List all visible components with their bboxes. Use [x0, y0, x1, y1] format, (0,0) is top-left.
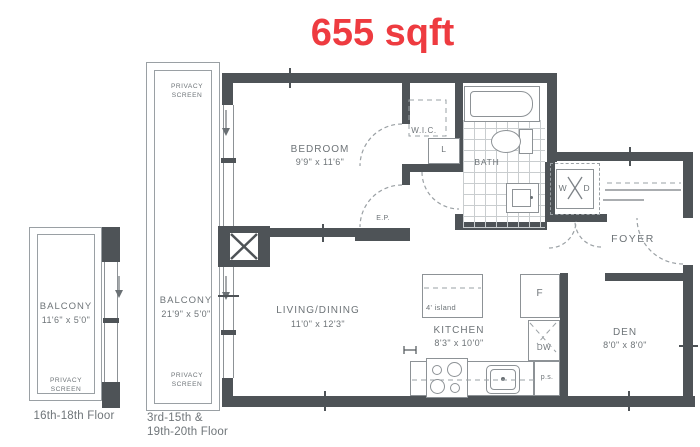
den-label: DEN [597, 327, 653, 340]
wall-bath-right-exterior [547, 73, 557, 162]
sqft-title: 655 sqft [250, 12, 515, 58]
wall-wic-bottom [402, 164, 462, 172]
fridge-label: F [520, 288, 560, 301]
wall-right-below-entry [683, 265, 693, 407]
electrical-panel-label: E.P. [370, 215, 396, 224]
wd-door-left-arc [549, 221, 576, 248]
burner-small-2 [450, 383, 460, 393]
balcony-left-dims: 11'6" x 5'0" [28, 315, 104, 326]
balcony-main-inner [154, 70, 212, 404]
bath-sink-faucet [530, 196, 533, 199]
den-dims: 8'0" x 8'0" [589, 340, 661, 351]
wall-left-bottom [222, 378, 233, 407]
living-dining-dims: 11'0" x 12'3" [278, 319, 358, 330]
wall-kitchen-den-divider [560, 273, 568, 396]
wall-balcony-left-top [102, 227, 120, 262]
kitchen-sink-drain [501, 377, 505, 381]
wall-bedroom-right-upper [402, 83, 410, 124]
burner-large-2 [430, 379, 445, 394]
wall-right-above-entry [683, 152, 693, 218]
wic-door-arc [360, 124, 402, 166]
wall-top [222, 73, 557, 83]
wall-den-top [605, 273, 683, 281]
floor-range-right-line1: 3rd-15th & [147, 411, 247, 425]
dryer-label: D [581, 183, 593, 194]
bedroom-label: BEDROOM [282, 144, 358, 157]
balcony-main-privacy-top-label: PRIVACY SCREEN [162, 83, 212, 101]
floor-range-left: 16th-18th Floor [14, 409, 134, 423]
washer-label: W [557, 183, 569, 194]
floorplan: 655 sqft BALCONY 11'6" x 5'0" PRIVACY SC… [0, 0, 700, 447]
dishwasher [528, 320, 560, 361]
wall-balcony-left-mullion [103, 318, 119, 323]
kitchen-label: KITCHEN [426, 325, 492, 338]
glass-wall-mullion-1 [221, 158, 236, 163]
balcony-left-inner [37, 234, 95, 394]
balcony-left-privacy-screen-label: PRIVACY SCREEN [40, 377, 92, 395]
bath-sink-basin [512, 189, 531, 207]
wall-left-top [222, 73, 233, 105]
foyer-label: FOYER [597, 233, 669, 246]
balcony-main-label: BALCONY [156, 295, 216, 307]
kitchen-dims: 8'3" x 10'0" [421, 338, 497, 349]
wic-label: W.I.C. [399, 126, 449, 136]
burner-large-1 [447, 362, 462, 377]
pipe-shaft-label: p.s. [534, 374, 560, 383]
wall-balcony-left-bottom [102, 382, 120, 408]
floor-range-right-line2: 19th-20th Floor [147, 425, 257, 439]
bedroom-dims: 9'9" x 11'6" [279, 157, 361, 168]
bath-door-arc [422, 172, 459, 209]
island-label: 4' island [426, 303, 478, 312]
wall-wd-bottom [545, 214, 607, 222]
column-shaft-box [228, 231, 260, 262]
wall-bedroom-bottom-thick [355, 228, 410, 241]
balcony-left-label: BALCONY [36, 301, 96, 313]
dishwasher-label: DW [528, 343, 560, 353]
balcony-main-dims: 21'9" x 5'0" [148, 309, 224, 320]
bathtub-basin [470, 91, 533, 117]
bath-label: BATH [468, 157, 506, 168]
toilet-tank [519, 129, 533, 154]
living-dining-label: LIVING/DINING [266, 305, 370, 318]
toilet-bowl [491, 130, 521, 153]
wall-upper-right [547, 152, 693, 161]
foyer-closet-door-lines [603, 190, 681, 200]
balcony-main-privacy-bottom-label: PRIVACY SCREEN [162, 372, 212, 390]
glass-wall-mullion-2 [221, 330, 236, 335]
linen-closet-label: L [428, 144, 460, 155]
burner-small-1 [432, 365, 442, 375]
